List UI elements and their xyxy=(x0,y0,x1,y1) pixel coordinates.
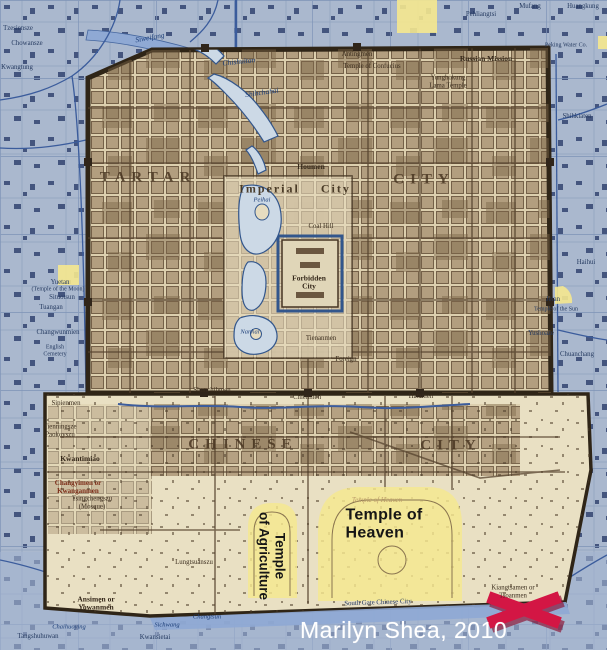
temple-of-heaven-highlight xyxy=(318,487,462,601)
beijing-map-svg xyxy=(0,0,607,650)
tartar-city xyxy=(84,38,554,397)
attribution-text: Marilyn Shea, 2010 xyxy=(300,617,507,644)
map-screenshot: TARTARCITYCHINESECITYImperial CityForbid… xyxy=(0,0,607,650)
